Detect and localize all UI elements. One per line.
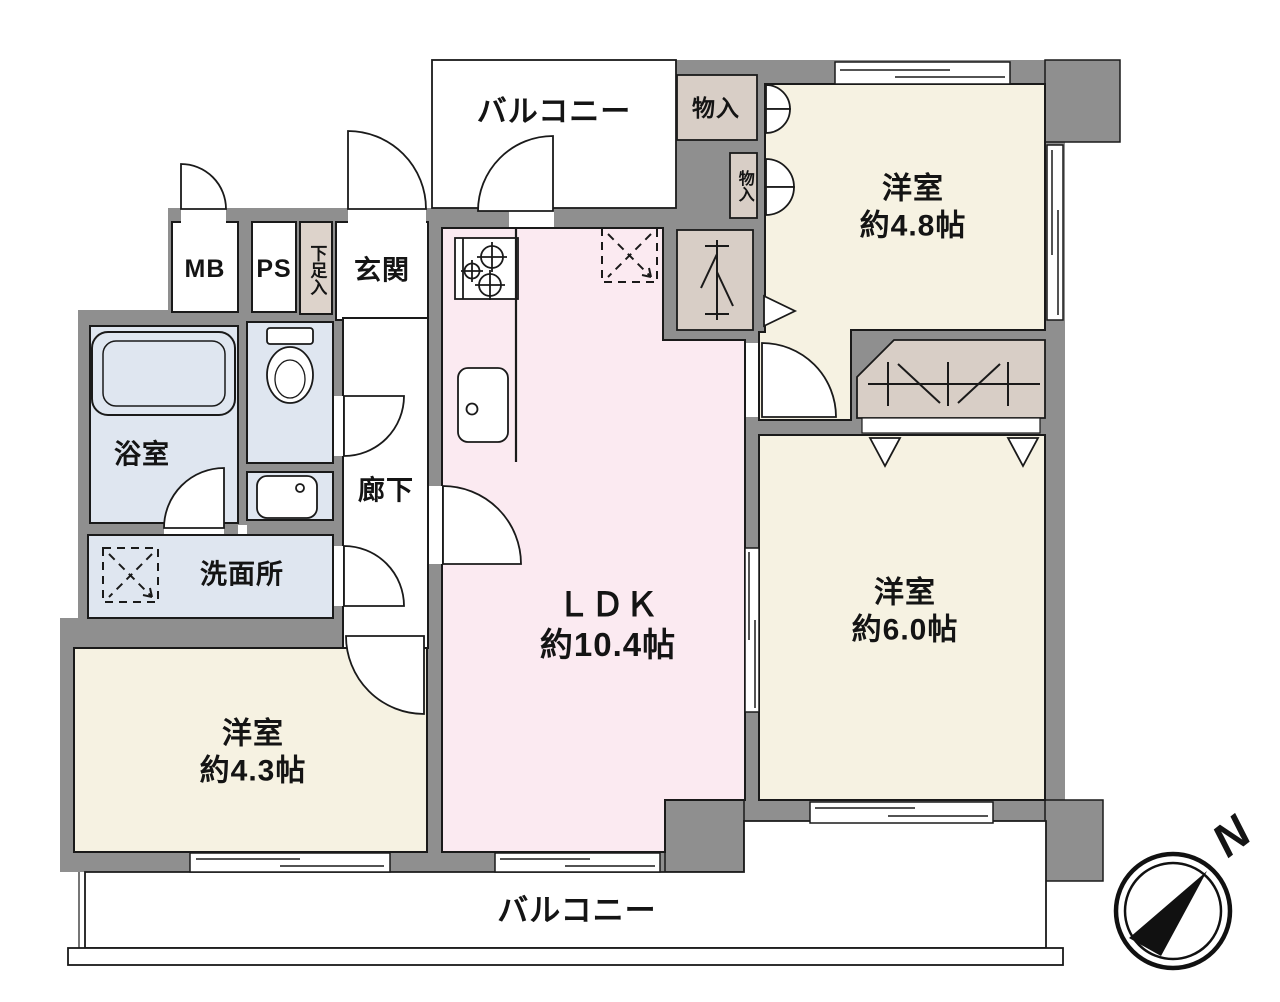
label-western-43: 洋室約4.3帖 [200,716,307,789]
bathtub [92,332,235,415]
window-60-bottom [810,802,993,823]
door-mb [181,164,226,209]
label-shoe-box: 下足入 [306,245,327,296]
wash-basin [257,476,317,518]
label-corridor: 廊下 [358,475,414,508]
floor-plan: バルコニー 物入 物入 洋室約4.8帖 MB PS 下足入 玄関 浴室 洗面所 … [0,0,1280,1002]
kitchen-sink [458,368,508,442]
label-bathroom: 浴室 [114,439,170,472]
compass-needle [1129,871,1207,956]
sliding-door-60 [745,548,759,712]
closet-hanger-large [857,340,1045,418]
room-balcony-top [432,60,676,208]
floor-plan-drawing [0,0,1280,1002]
label-storage-1: 物入 [692,94,740,122]
kitchen-stove [455,238,518,300]
label-washroom: 洗面所 [200,559,284,592]
window-43-bottom [190,853,390,872]
label-balcony-top: バルコニー [477,95,631,132]
toilet [267,328,313,403]
label-western-48: 洋室約4.8帖 [860,171,967,244]
window-48-right [1047,145,1063,320]
balcony-bottom-rail [68,948,1063,965]
label-storage-2: 物入 [734,170,754,202]
window-48-top [835,62,1010,84]
label-western-60: 洋室約6.0帖 [852,575,959,648]
compass-icon [1116,854,1230,968]
label-balcony-bottom: バルコニー [497,892,656,930]
window-ldk-bottom [495,853,660,872]
label-ldk: ＬＤＫ約10.4帖 [540,585,676,666]
label-entrance: 玄関 [354,255,410,288]
label-ps: PS [256,254,291,285]
door-entrance [348,131,426,209]
label-mb: MB [185,254,226,285]
